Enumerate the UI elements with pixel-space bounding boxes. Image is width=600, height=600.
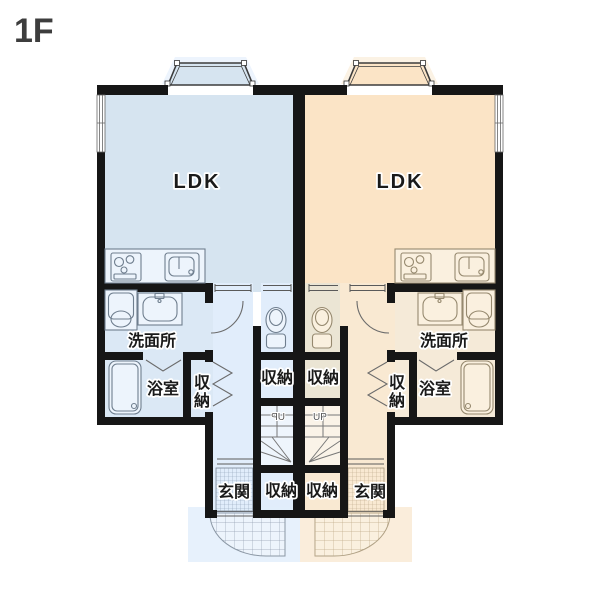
washing-machine-icon-left <box>105 290 137 330</box>
closet-entrance-label-right: 収納 <box>306 481 338 500</box>
ldk-label-left: LDK <box>173 171 220 193</box>
floor-label: 1F <box>14 12 54 50</box>
bathroom-label-left: 浴室 <box>147 379 179 398</box>
vanity-sink-icon-right <box>418 293 462 325</box>
entrance-label-left: 玄関 <box>218 482 250 501</box>
washroom-label-left: 洗面所 <box>128 331 176 350</box>
washing-machine-icon-right <box>463 290 495 330</box>
bay-window-right <box>341 57 438 86</box>
washroom-label-right: 洗面所 <box>420 331 468 350</box>
bay-window-left <box>162 57 259 86</box>
closet-side-label-right-1: 収 <box>389 374 406 392</box>
entrance-label-right: 玄関 <box>354 482 386 501</box>
window-left <box>97 95 105 152</box>
window-right <box>495 95 503 152</box>
floorplan-canvas: 1F LDK LDK 洗面所 洗面所 浴室 浴室 収 納 収 納 収納 収納 収… <box>0 0 600 600</box>
stairs-up-label-right: UP <box>313 412 327 423</box>
party-wall <box>293 85 305 518</box>
bathroom-label-right: 浴室 <box>419 379 451 398</box>
closet-hall-label-left: 収納 <box>261 368 293 387</box>
kitchen-counter-right <box>395 249 495 283</box>
toilet-icon-left <box>266 308 286 349</box>
bathtub-icon-right <box>461 361 493 414</box>
stairs-up-label-left: UP <box>271 412 285 423</box>
kitchen-counter-left <box>105 249 205 283</box>
closet-side-label-left-1: 収 <box>194 374 211 392</box>
toilet-icon-right <box>312 308 332 349</box>
vanity-sink-icon-left <box>138 293 182 325</box>
closet-entrance-label-left: 収納 <box>265 481 297 500</box>
ldk-label-right: LDK <box>376 171 423 193</box>
floorplan-page: 1F LDK LDK 洗面所 洗面所 浴室 浴室 収 納 収 納 収納 収納 収… <box>0 0 600 600</box>
closet-side-label-left-2: 納 <box>194 391 210 410</box>
svg-text:UP: UP <box>271 412 285 423</box>
closet-side-label-right-2: 納 <box>389 391 405 410</box>
bathtub-icon-left <box>109 361 141 414</box>
closet-hall-label-right: 収納 <box>307 368 339 387</box>
